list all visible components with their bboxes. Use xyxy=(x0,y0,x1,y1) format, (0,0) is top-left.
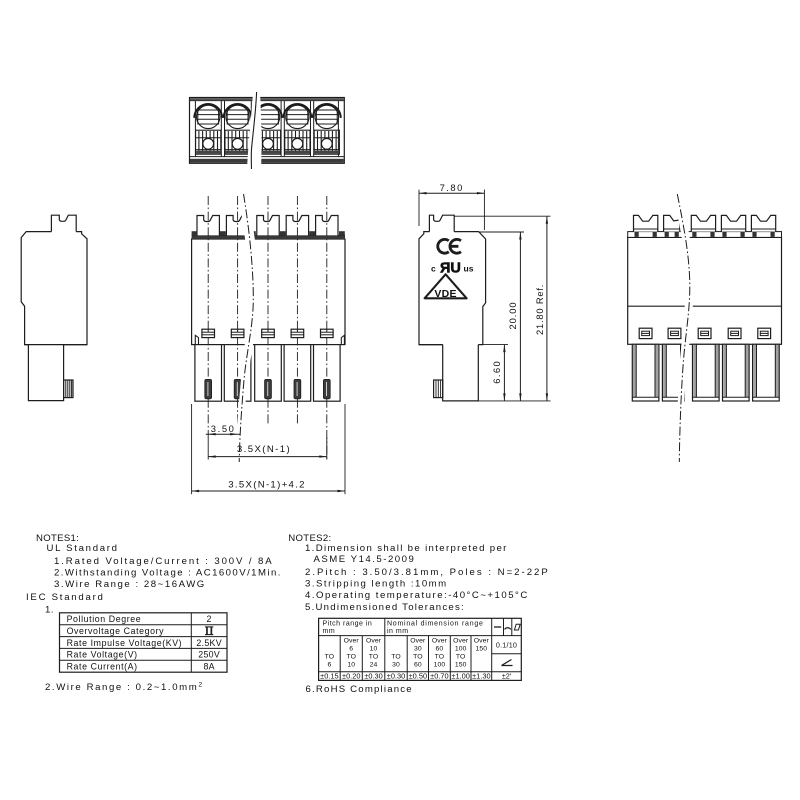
svg-text:1.Dimension shall be interpret: 1.Dimension shall be interpreted per xyxy=(305,543,508,554)
svg-text:in mm: in mm xyxy=(387,628,409,635)
svg-text:7.80: 7.80 xyxy=(440,182,464,193)
svg-text:±0.50: ±0.50 xyxy=(409,672,427,681)
svg-text:TO: TO xyxy=(456,654,466,661)
svg-text:±0.20: ±0.20 xyxy=(342,672,360,681)
svg-text:Rate Current(A): Rate Current(A) xyxy=(67,662,138,672)
svg-text:2: 2 xyxy=(207,614,212,624)
svg-text:3.5X(N-1): 3.5X(N-1) xyxy=(237,444,291,455)
svg-text:5.Undimensioned Tolerances:: 5.Undimensioned Tolerances: xyxy=(305,602,465,613)
svg-text:mm: mm xyxy=(323,628,336,635)
svg-text:4.Operating temperature:-40°C~: 4.Operating temperature:-40°C~+105°C xyxy=(305,590,529,601)
svg-text:TO: TO xyxy=(369,654,379,661)
svg-text:Over: Over xyxy=(366,638,382,645)
svg-text:6: 6 xyxy=(327,661,331,668)
svg-text:60: 60 xyxy=(414,662,422,669)
svg-text:Pitch range in: Pitch range in xyxy=(323,620,373,627)
svg-text:UL Standard: UL Standard xyxy=(47,543,119,554)
svg-text:NOTES2:: NOTES2: xyxy=(288,533,331,544)
svg-text:Rate Voltage(V): Rate Voltage(V) xyxy=(67,650,138,660)
svg-text:24: 24 xyxy=(370,662,378,669)
svg-text:3.Wire Range : 28~16AWG: 3.Wire Range : 28~16AWG xyxy=(54,579,206,590)
svg-text:2.5KV: 2.5KV xyxy=(196,638,221,648)
svg-text:30: 30 xyxy=(392,661,400,668)
svg-text:2.Pitch : 3.50/3.81mm, Poles :: 2.Pitch : 3.50/3.81mm, Poles : N=2-22P xyxy=(305,567,550,578)
svg-text:20.00: 20.00 xyxy=(507,302,518,330)
svg-text:Overvoltage Category: Overvoltage Category xyxy=(67,626,165,636)
svg-text:10: 10 xyxy=(370,646,378,653)
svg-text:60: 60 xyxy=(436,646,444,653)
svg-text:ЯU: ЯU xyxy=(440,261,461,277)
svg-text:2.Wire Range : 0.2~1.0mm2: 2.Wire Range : 0.2~1.0mm2 xyxy=(45,682,204,694)
svg-text:250V: 250V xyxy=(198,650,220,660)
svg-text:ASME Y14.5-2009: ASME Y14.5-2009 xyxy=(314,554,416,565)
svg-text:Over: Over xyxy=(453,638,469,645)
svg-text:±1.30: ±1.30 xyxy=(472,672,490,681)
svg-text:0.1/10: 0.1/10 xyxy=(496,641,517,650)
svg-text:8A: 8A xyxy=(203,662,214,672)
svg-text:Pollution Degree: Pollution Degree xyxy=(67,614,142,624)
svg-text:Over: Over xyxy=(474,638,490,645)
svg-text:100: 100 xyxy=(455,646,467,653)
svg-text:NOTES1:: NOTES1: xyxy=(36,533,79,544)
svg-text:TO: TO xyxy=(325,653,335,660)
svg-text:Over: Over xyxy=(432,638,448,645)
svg-text:±2': ±2' xyxy=(502,672,512,681)
svg-text:±0.15: ±0.15 xyxy=(320,672,338,681)
svg-text:±0.30: ±0.30 xyxy=(364,672,382,681)
svg-text:10: 10 xyxy=(347,662,355,669)
svg-text:6.RoHS Compliance: 6.RoHS Compliance xyxy=(306,684,413,695)
svg-text:IEC Standard: IEC Standard xyxy=(26,592,105,603)
svg-text:21.80 Ref.: 21.80 Ref. xyxy=(534,284,545,335)
svg-text:100: 100 xyxy=(434,662,446,669)
svg-text:us: us xyxy=(464,264,474,274)
svg-text:TO: TO xyxy=(435,654,445,661)
svg-text:Over: Over xyxy=(344,638,360,645)
svg-text:c: c xyxy=(431,264,436,274)
svg-text:150: 150 xyxy=(455,662,467,669)
svg-text:±0.30: ±0.30 xyxy=(387,672,405,681)
svg-text:Rate Impulse Voltage(KV): Rate Impulse Voltage(KV) xyxy=(67,638,183,648)
svg-text:2.Withstanding Voltage : AC160: 2.Withstanding Voltage : AC1600V/1Min. xyxy=(54,568,282,579)
svg-text:±0.70: ±0.70 xyxy=(430,672,448,681)
svg-text:Over: Over xyxy=(410,638,426,645)
svg-text:1.: 1. xyxy=(45,605,54,616)
svg-text:VDE: VDE xyxy=(434,288,457,300)
svg-text:1.Rated Voltage/Current : 300V: 1.Rated Voltage/Current : 300V / 8A xyxy=(54,556,274,567)
svg-text:TO: TO xyxy=(413,654,423,661)
svg-text:TO: TO xyxy=(391,653,401,660)
svg-text:3.5X(N-1)+4.2: 3.5X(N-1)+4.2 xyxy=(228,480,305,491)
svg-text:3.Stripping length :10mm: 3.Stripping length :10mm xyxy=(305,578,448,589)
svg-text:Nominal dimension range: Nominal dimension range xyxy=(387,620,484,627)
svg-text:TO: TO xyxy=(346,654,356,661)
svg-text:150: 150 xyxy=(476,646,488,653)
svg-text:3.50: 3.50 xyxy=(211,423,236,434)
svg-text:6.60: 6.60 xyxy=(491,360,502,384)
svg-text:30: 30 xyxy=(414,646,422,653)
svg-text:6: 6 xyxy=(349,646,353,653)
svg-text:±1.00: ±1.00 xyxy=(451,672,469,681)
